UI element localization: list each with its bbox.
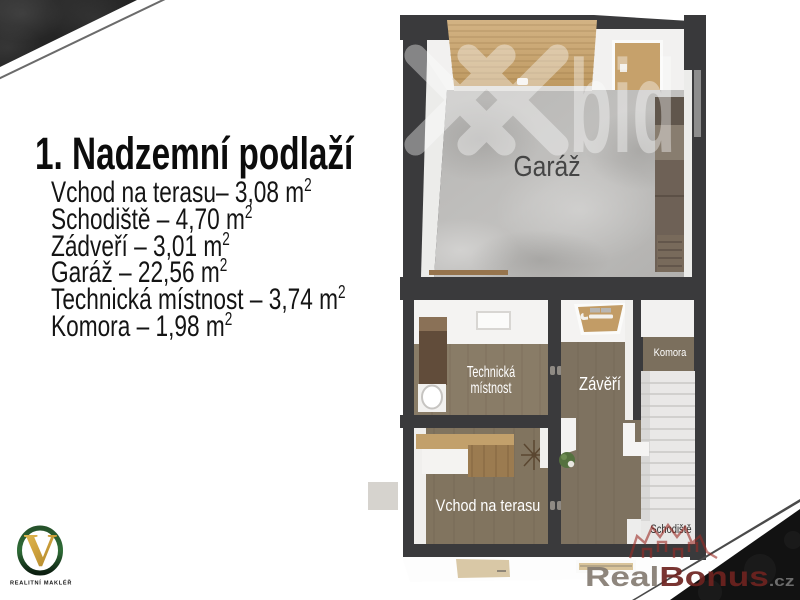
svg-text:Vchod na terasu: Vchod na terasu (436, 497, 540, 515)
svg-text:bid: bid (569, 34, 676, 181)
svg-text:Technická: Technická (467, 363, 516, 380)
svg-text:RealBonus.cz: RealBonus.cz (585, 561, 794, 592)
svg-text:Závěří: Závěří (579, 373, 621, 394)
svg-text:místnost: místnost (471, 379, 512, 396)
svg-text:Komora: Komora (654, 347, 687, 359)
